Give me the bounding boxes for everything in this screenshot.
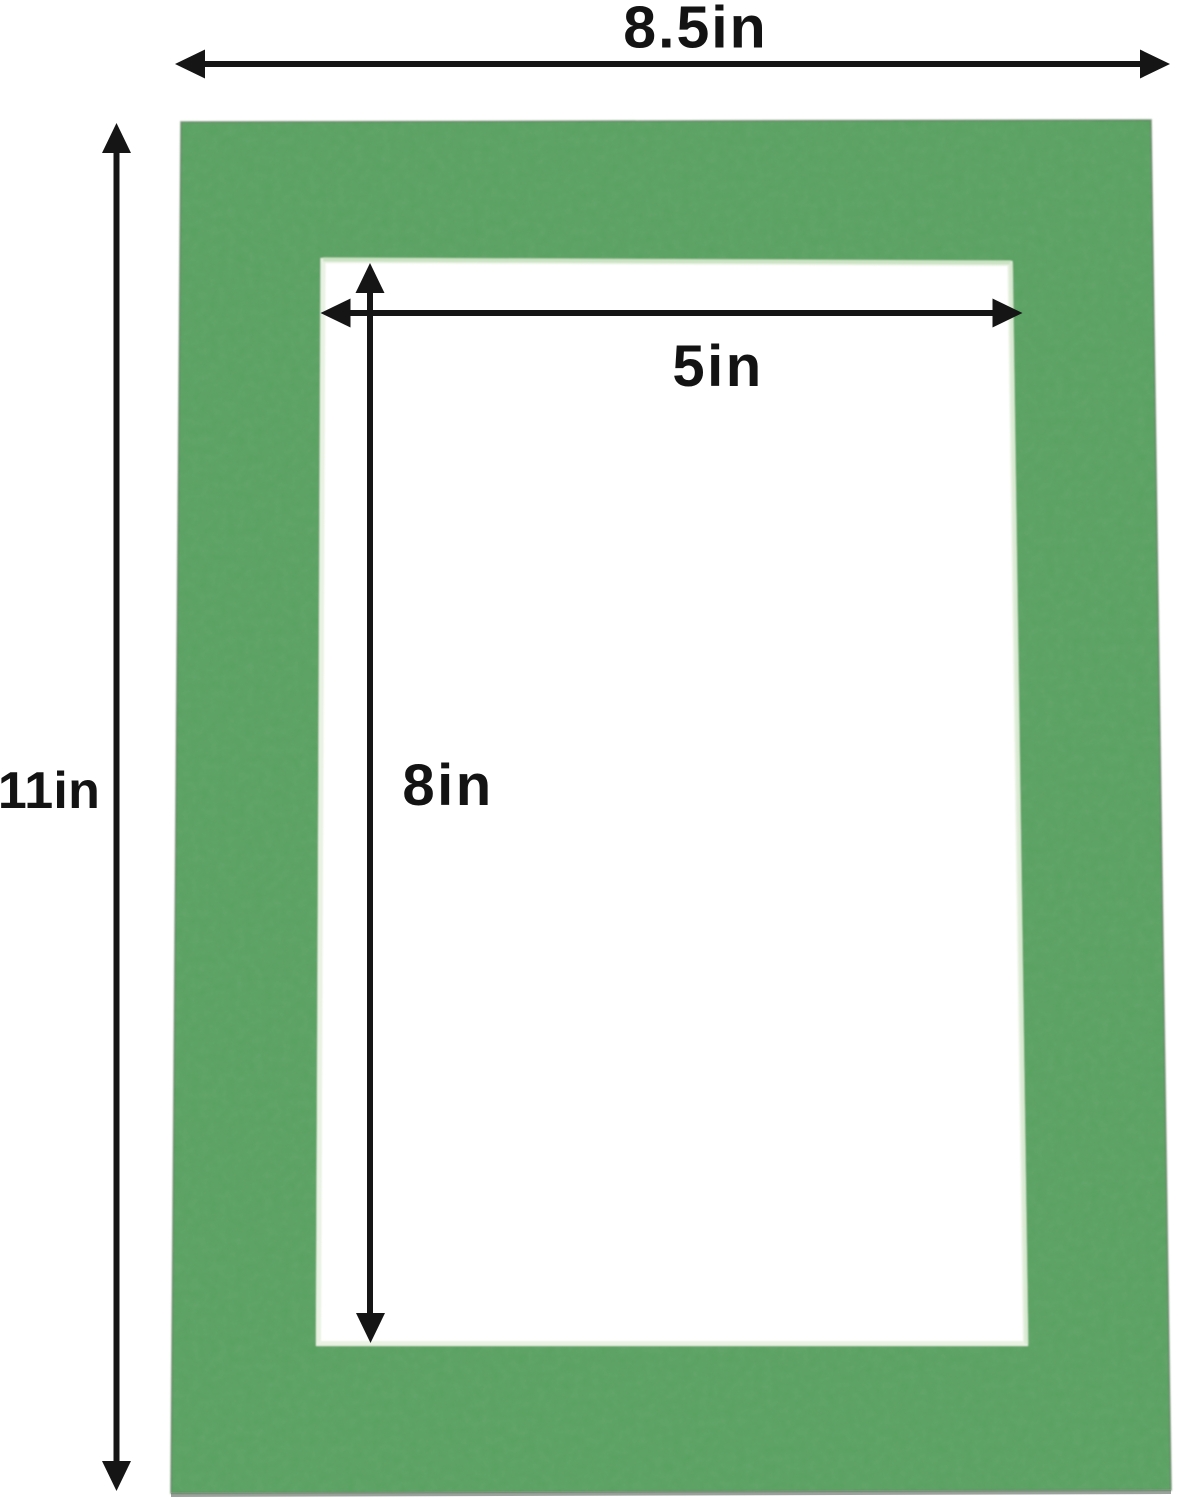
svg-text:8in: 8in	[402, 753, 493, 818]
svg-text:8.5in: 8.5in	[623, 0, 767, 61]
svg-text:5in: 5in	[672, 334, 763, 399]
svg-text:11in: 11in	[0, 762, 100, 820]
